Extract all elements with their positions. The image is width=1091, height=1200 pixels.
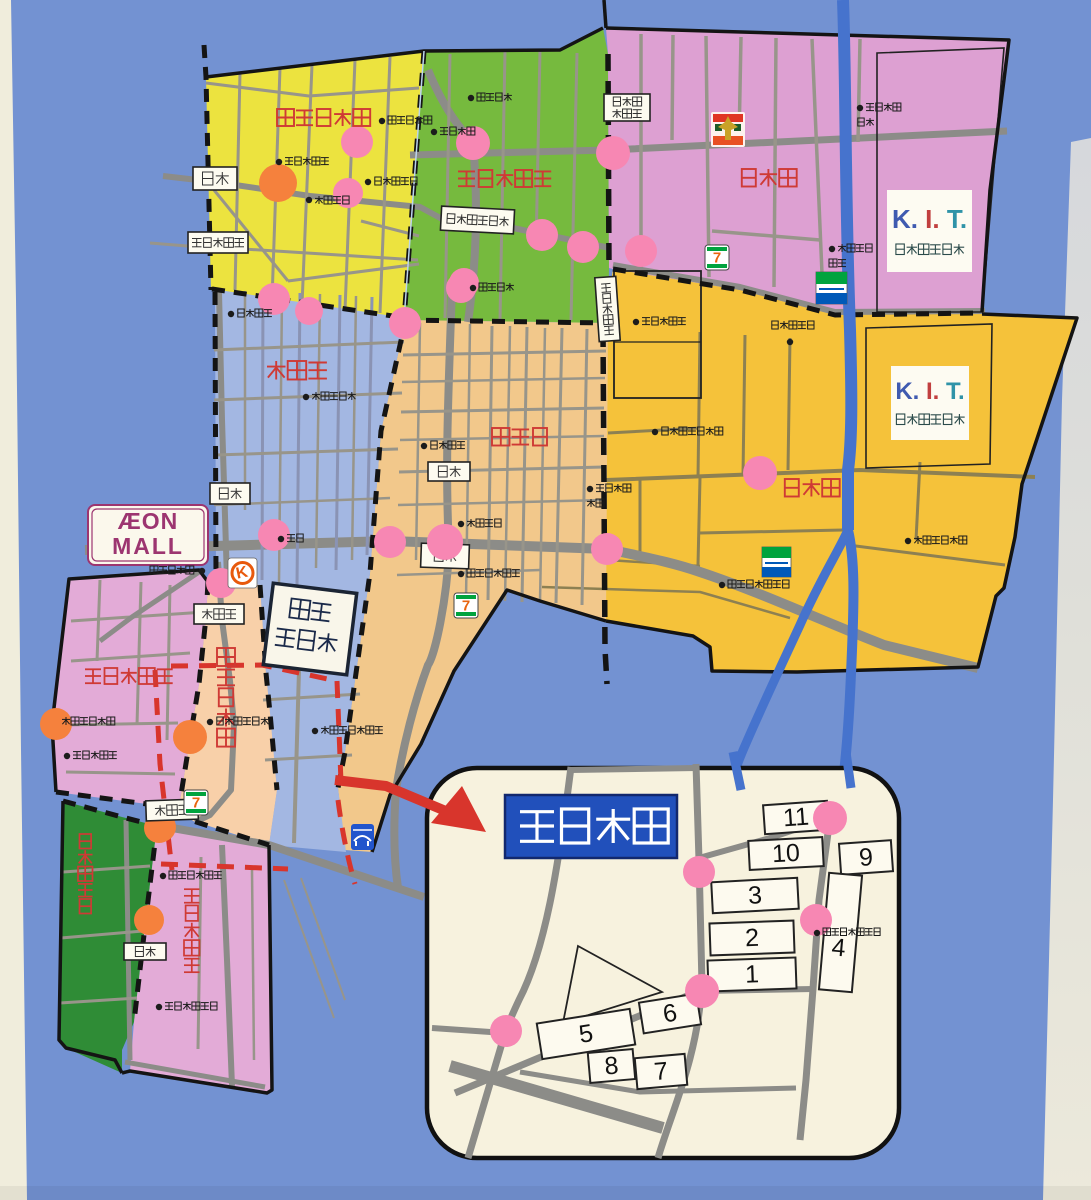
svg-text:2: 2	[745, 924, 760, 952]
svg-text:4: 4	[831, 933, 847, 962]
svg-text:10: 10	[771, 839, 800, 868]
svg-text:11: 11	[782, 803, 810, 833]
svg-text:1: 1	[745, 960, 760, 988]
svg-text:3: 3	[747, 881, 762, 910]
svg-text:7: 7	[192, 795, 200, 812]
svg-text:7: 7	[713, 250, 721, 267]
svg-text:MALL: MALL	[112, 533, 184, 559]
svg-text:K. I. T.: K. I. T.	[895, 378, 964, 405]
svg-text:ÆON: ÆON	[118, 508, 179, 534]
svg-text:9: 9	[858, 843, 874, 872]
svg-text:K. I. T.: K. I. T.	[892, 204, 967, 234]
svg-text:8: 8	[603, 1051, 619, 1080]
svg-text:7: 7	[462, 598, 470, 615]
svg-text:7: 7	[653, 1057, 669, 1086]
